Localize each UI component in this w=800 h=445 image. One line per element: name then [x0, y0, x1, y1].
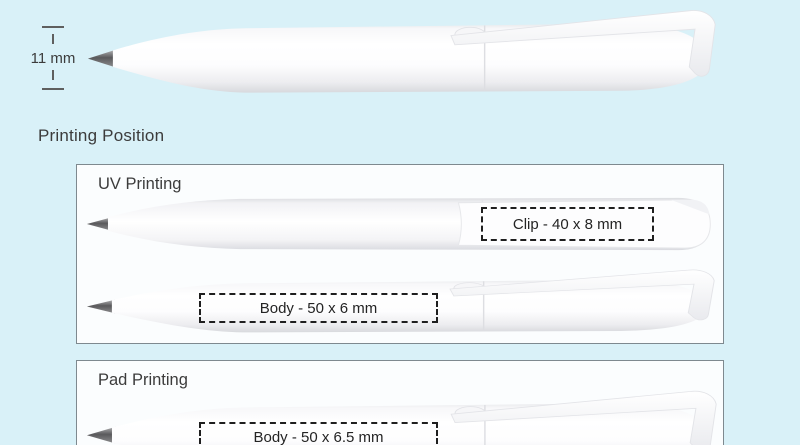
pad-printing-title: Pad Printing	[98, 371, 188, 390]
clip-print-area-label: Clip - 40 x 8 mm	[513, 216, 622, 233]
dimension-line-bottom	[52, 70, 54, 80]
body-print-area-box: Body - 50 x 6.5 mm	[199, 422, 438, 445]
printing-position-spec-sheet: 11 mm Printing Position UV Printing Clip…	[0, 0, 800, 445]
dimension-label: 11 mm	[21, 50, 85, 67]
body-print-area-label: Body - 50 x 6.5 mm	[253, 429, 383, 445]
uv-printing-panel: UV Printing Clip - 40 x 8 mm Body - 50 x…	[76, 164, 724, 344]
dimension-tick-top	[42, 26, 64, 28]
dimension-line-top	[52, 34, 54, 44]
pad-printing-panel: Pad Printing Body - 50 x 6.5 mm	[76, 360, 724, 445]
body-print-area-box: Body - 50 x 6 mm	[199, 293, 438, 323]
section-title: Printing Position	[38, 126, 164, 146]
height-dimension-marker: 11 mm	[30, 26, 76, 90]
clip-print-area-box: Clip - 40 x 8 mm	[481, 207, 654, 241]
body-print-area-label: Body - 50 x 6 mm	[260, 300, 378, 317]
pen-side-view-image	[86, 8, 720, 100]
uv-printing-title: UV Printing	[98, 175, 181, 194]
dimension-tick-bottom	[42, 88, 64, 90]
